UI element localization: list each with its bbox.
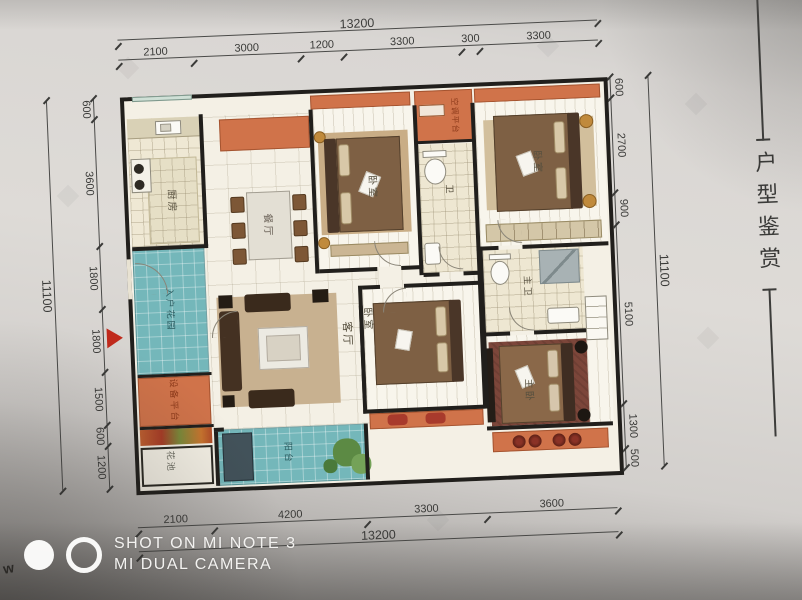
room-label-kitchen: 厨房 xyxy=(165,189,181,214)
watermark-line2: MI DUAL CAMERA xyxy=(114,555,297,576)
room-label-master-bedroom: 主卧 xyxy=(523,378,539,403)
dim-value: 5100 xyxy=(622,301,634,326)
dim-value: 900 xyxy=(618,199,630,218)
dim-value: 1800 xyxy=(90,329,102,354)
room-label-bedroom1: 卧室 xyxy=(366,175,382,200)
sofa xyxy=(248,389,295,409)
kitchen-window xyxy=(132,95,192,103)
side-table xyxy=(222,395,234,407)
dim-segment: 1800 xyxy=(87,309,105,373)
kitchen-sink-basin xyxy=(160,123,171,131)
bedroom3-pillow xyxy=(436,342,448,372)
shower xyxy=(539,249,580,285)
dim-value: 11100 xyxy=(40,279,54,312)
room-label-bath: 卫 xyxy=(443,184,456,196)
dim-left-total: 11100 xyxy=(31,101,63,491)
balcony-door-panel xyxy=(222,432,254,481)
wall-segment xyxy=(480,246,498,251)
room-label-master-bath: 主卫 xyxy=(521,275,535,298)
master-pillow xyxy=(547,349,559,377)
dim-value: 3300 xyxy=(414,504,439,516)
left-edge-mark: w xyxy=(2,559,16,577)
dim-value: 1300 xyxy=(627,414,639,439)
dim-value: 1200 xyxy=(309,40,334,52)
coffee-table-decor xyxy=(266,334,301,361)
dim-value: 300 xyxy=(461,33,480,45)
wall-segment xyxy=(423,272,439,277)
dim-segment: 300 xyxy=(461,30,480,48)
master-pillow xyxy=(548,383,560,411)
toilet-tank xyxy=(422,150,446,158)
dim-value: 1500 xyxy=(92,387,104,412)
dim-segment: 3600 xyxy=(79,120,99,247)
camera-watermark: SHOT ON MI NOTE 3 MI DUAL CAMERA xyxy=(24,534,297,576)
dim-left-segments: 60036001800180015006001200 xyxy=(78,99,110,489)
dim-value: 500 xyxy=(628,448,640,467)
dim-value: 11100 xyxy=(657,253,671,286)
sofa xyxy=(244,293,291,313)
bedroom3-pillow xyxy=(435,306,447,336)
dim-value: 4200 xyxy=(278,509,303,521)
caption-rule-top xyxy=(756,0,764,141)
dim-value: 600 xyxy=(94,427,106,446)
dim-value: 13200 xyxy=(339,16,374,30)
dim-segment: 3300 xyxy=(366,499,487,521)
bedroom2-pillow xyxy=(553,121,565,153)
flower-bed xyxy=(140,427,213,446)
bedroom1-pillow xyxy=(338,144,350,176)
room-label-balcony: 阳台 xyxy=(282,442,296,465)
dim-value: 3600 xyxy=(539,498,564,510)
dim-segment: 2100 xyxy=(137,510,214,530)
dim-segment: 1200 xyxy=(92,446,109,489)
dim-value: 3000 xyxy=(234,43,259,55)
dim-segment: 4200 xyxy=(214,504,367,527)
dim-segment: 2100 xyxy=(118,43,194,63)
dim-segment: 900 xyxy=(615,192,631,224)
printed-page: 13200 21003000120033003003300 2100420033… xyxy=(0,0,802,582)
dim-right-total: 11100 xyxy=(647,75,679,465)
side-caption-block: 户型鉴赏 xyxy=(740,0,794,463)
dim-segment: 3000 xyxy=(193,38,301,59)
bay-pillow xyxy=(425,412,445,424)
room-label-entry-garden: 入户花园 xyxy=(163,287,178,332)
room-label-flower-bed: 花池 xyxy=(164,451,178,474)
dining-chair xyxy=(231,222,246,239)
dining-chair xyxy=(293,220,308,237)
dim-segment: 11100 xyxy=(31,101,62,491)
dim-segment: 600 xyxy=(92,425,108,447)
mi-ring-icon xyxy=(66,537,102,573)
dining-chair xyxy=(232,248,247,265)
floor-plan: 厨房 餐厅 卧室 xyxy=(120,77,624,495)
watermark-line1: SHOT ON MI NOTE 3 xyxy=(114,534,297,555)
dim-value: 1200 xyxy=(95,455,107,480)
dim-segment: 1200 xyxy=(300,36,344,55)
photo-background: 13200 21003000120033003003300 2100420033… xyxy=(0,0,802,600)
dining-chair xyxy=(294,246,309,263)
entry-arrow-icon xyxy=(107,328,124,349)
dim-value: 3600 xyxy=(83,171,95,196)
dim-segment: 11100 xyxy=(648,75,679,465)
room-label-dining: 餐厅 xyxy=(261,213,277,238)
dim-value: 600 xyxy=(80,100,92,119)
dining-chair xyxy=(230,196,245,213)
dim-value: 2100 xyxy=(143,47,168,59)
side-table xyxy=(312,289,329,303)
dim-value: 13200 xyxy=(361,528,396,542)
dim-value: 600 xyxy=(612,78,624,97)
bay-pillow xyxy=(387,414,407,426)
caption-rule-bottom xyxy=(768,289,776,437)
dim-segment: 3300 xyxy=(343,31,462,53)
dim-value: 2700 xyxy=(615,133,627,158)
room-label-ac-platform: 空调平台 xyxy=(449,97,461,133)
right-edge-cutoff-text: OOOE xyxy=(783,0,802,2)
room-label-living: 客厅 xyxy=(339,321,356,348)
dining-chair xyxy=(292,194,307,211)
room-label-bedroom2: 卧室 xyxy=(531,150,547,175)
ac-unit xyxy=(418,104,444,117)
master-sink xyxy=(547,307,580,324)
dim-segment: 600 xyxy=(78,99,94,121)
dim-value: 1800 xyxy=(87,266,99,291)
dim-segment: 1300 xyxy=(624,403,641,449)
bedroom1-pillow xyxy=(340,192,352,224)
room-label-equipment-platform: 设备平台 xyxy=(167,378,182,423)
mi-dot-icon xyxy=(24,540,54,570)
dining-top-platform xyxy=(219,116,310,152)
dim-segment: 1500 xyxy=(89,373,106,426)
master-closet xyxy=(585,295,609,340)
dim-segment: 1800 xyxy=(84,246,102,310)
balcony-plant xyxy=(323,459,338,474)
dim-value: 3300 xyxy=(390,36,415,48)
dim-segment: 3600 xyxy=(486,493,618,515)
dim-segment: 500 xyxy=(626,449,642,467)
entry-door-gap xyxy=(127,259,133,299)
dim-value: 3300 xyxy=(526,31,551,43)
master-toilet-tank xyxy=(489,253,511,260)
dim-value: 2100 xyxy=(163,514,188,526)
wall-segment xyxy=(362,285,380,290)
dim-segment: 2700 xyxy=(611,97,630,192)
side-table xyxy=(218,295,233,309)
side-caption: 户型鉴赏 xyxy=(747,140,785,289)
bedroom2-pillow xyxy=(555,167,567,199)
master-bay-window xyxy=(492,427,609,452)
dim-segment: 3300 xyxy=(479,26,598,48)
